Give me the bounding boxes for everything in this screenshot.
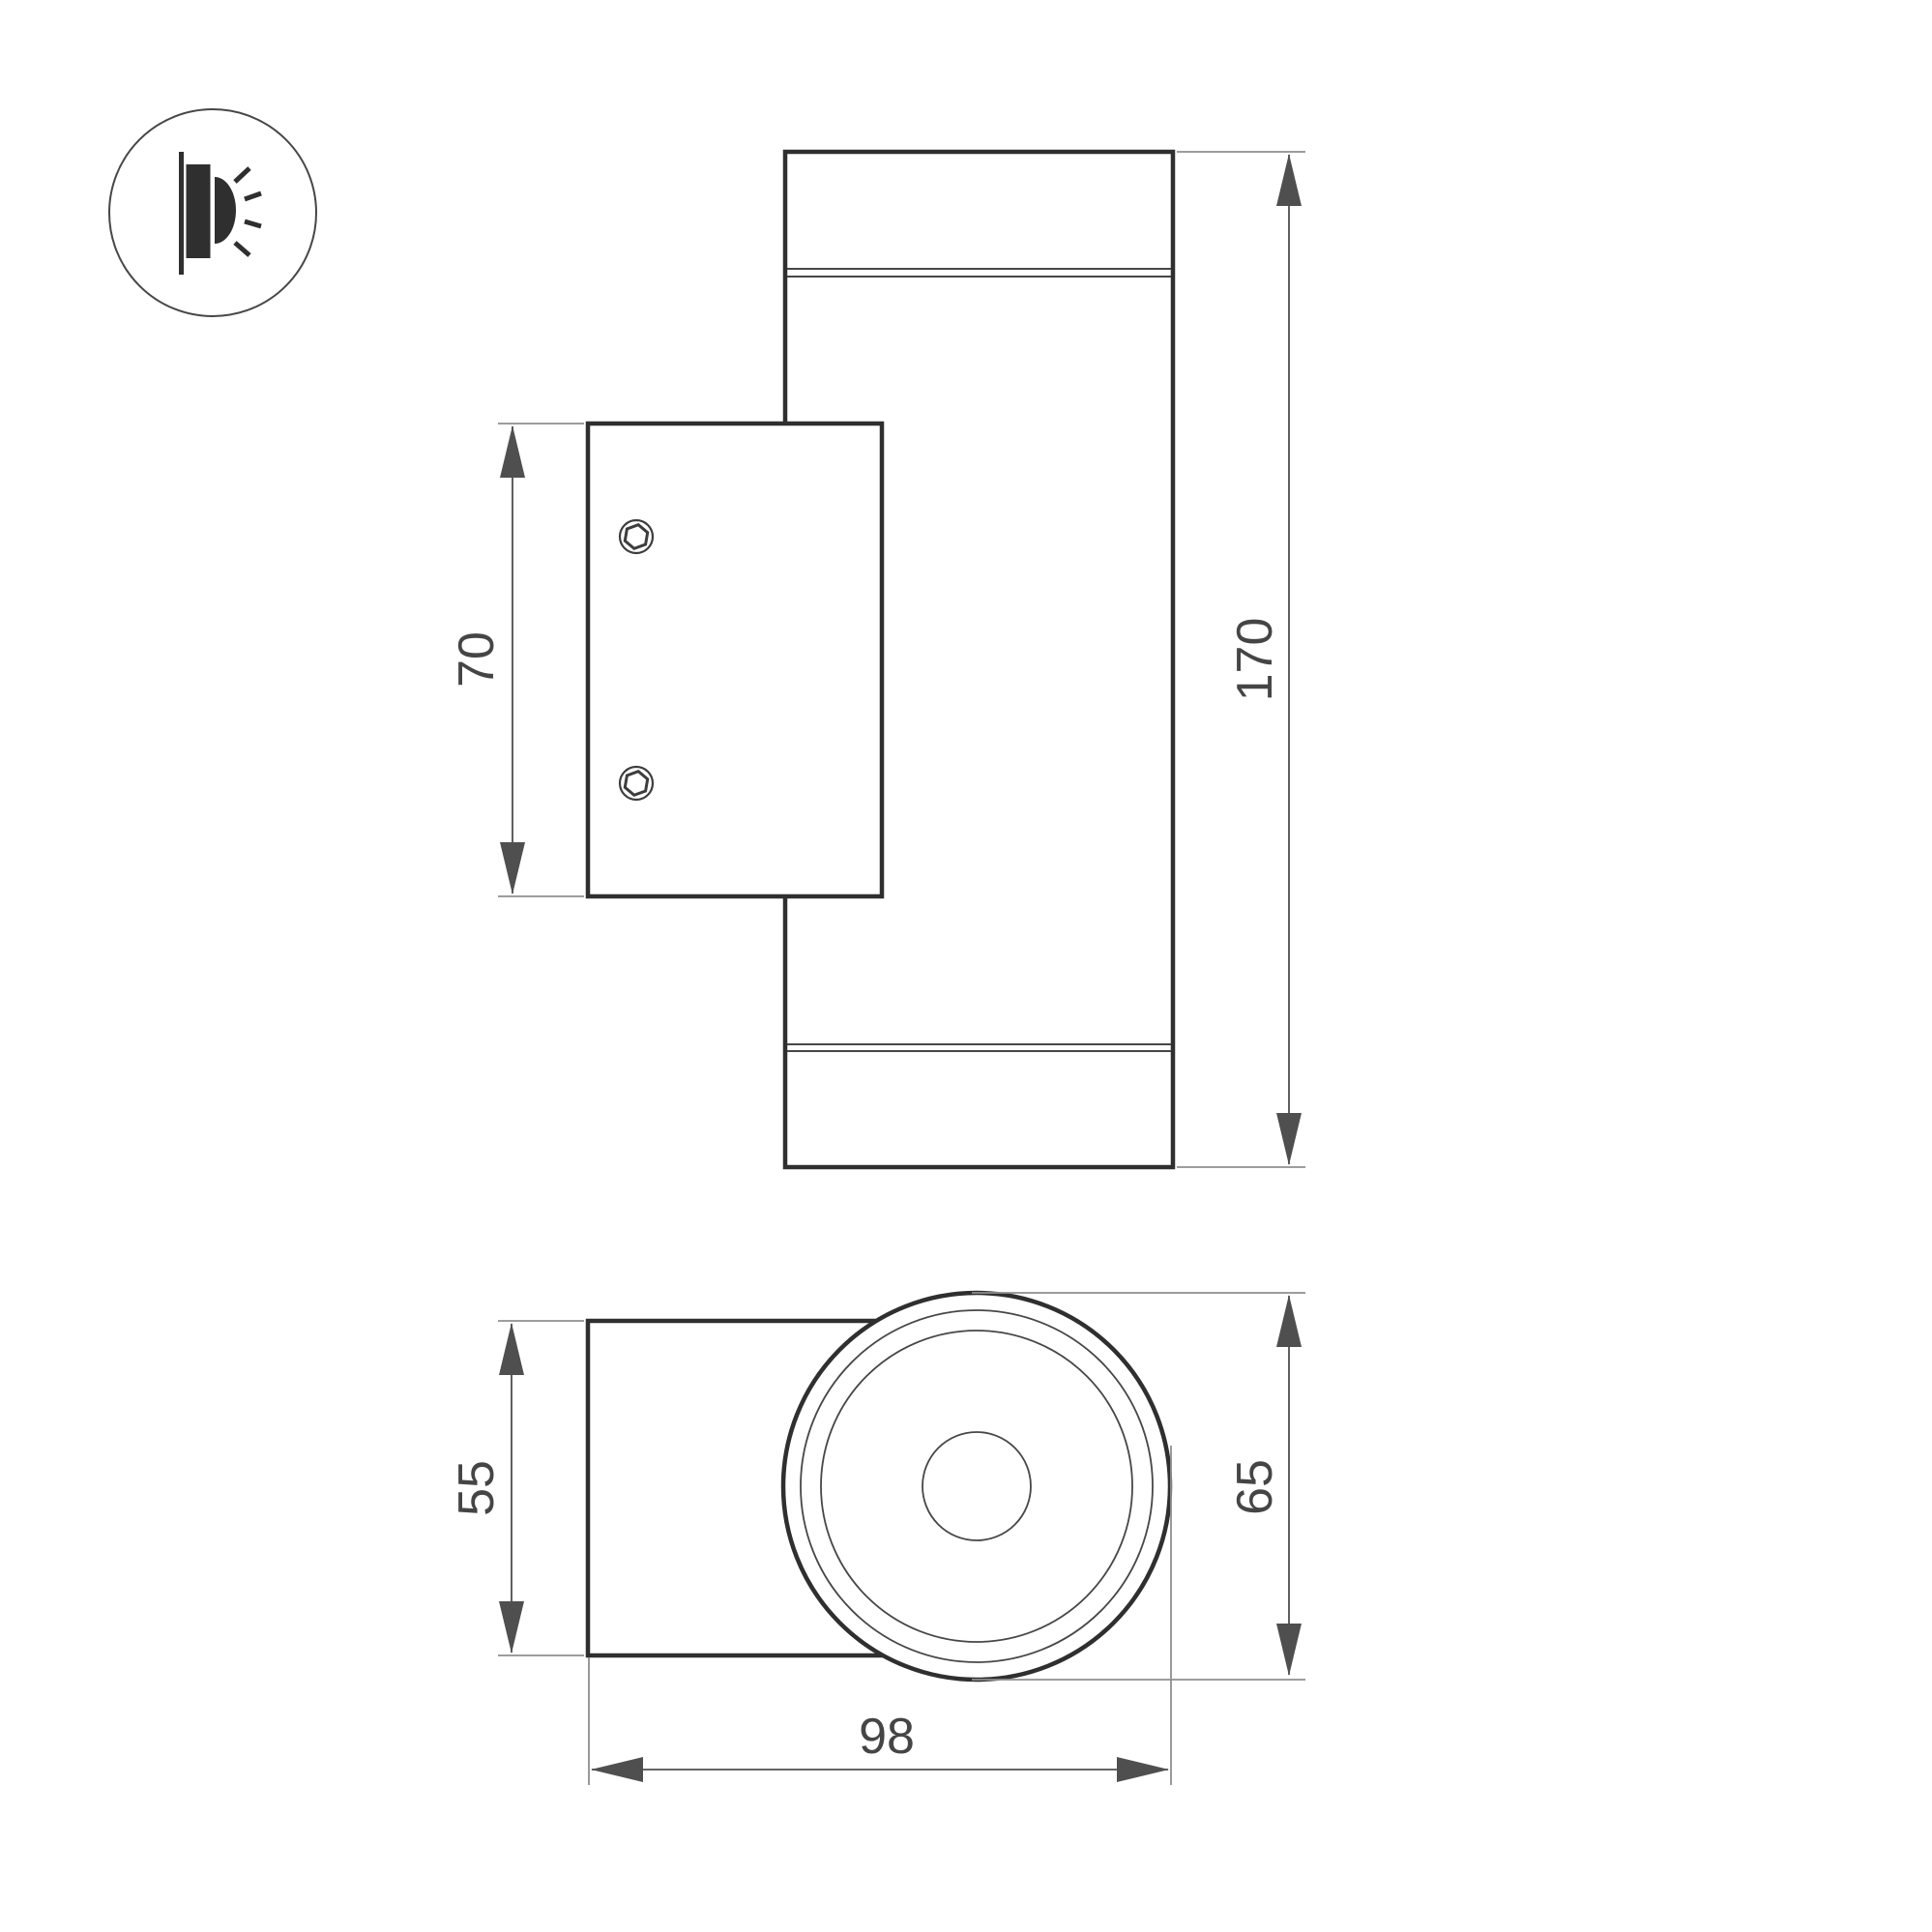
dimension-label-170: 170 [1227, 618, 1283, 702]
top-plan-view [588, 1293, 1170, 1680]
body-outer-circle [783, 1293, 1170, 1680]
dimension-bracket-height: 70 [449, 424, 584, 896]
dimension-label-55: 55 [449, 1460, 505, 1516]
wall-bracket-outline [588, 424, 882, 896]
arrowhead-up [500, 425, 525, 478]
screw-hex-socket-top [620, 520, 653, 553]
wall-light-emission-icon [109, 109, 316, 316]
technical-drawing-canvas: 70 170 55 65 [0, 0, 1932, 1932]
dimension-label-98: 98 [859, 1709, 915, 1765]
icon-border-circle [109, 109, 316, 316]
arrowhead-up [1276, 154, 1302, 206]
side-elevation-view [588, 152, 1173, 1167]
lamp-body [187, 164, 211, 258]
arrowhead-down [499, 1601, 524, 1654]
lamp-body-plan [783, 1293, 1170, 1680]
dimension-label-65: 65 [1227, 1459, 1283, 1515]
dimension-mount-width: 55 [449, 1321, 584, 1655]
arrowhead-up [1276, 1295, 1302, 1347]
arrowhead-down [1276, 1113, 1302, 1165]
arrowhead-right [1117, 1757, 1169, 1782]
screw-hex-socket-bottom [620, 767, 653, 800]
dimension-label-70: 70 [449, 631, 505, 688]
drawing-page: 70 170 55 65 [0, 0, 1932, 1932]
arrowhead-down [500, 842, 525, 894]
dimension-total-height: 170 [1177, 152, 1305, 1167]
arrowhead-up [499, 1323, 524, 1375]
arrowhead-left [591, 1757, 643, 1782]
arrowhead-down [1276, 1624, 1302, 1676]
